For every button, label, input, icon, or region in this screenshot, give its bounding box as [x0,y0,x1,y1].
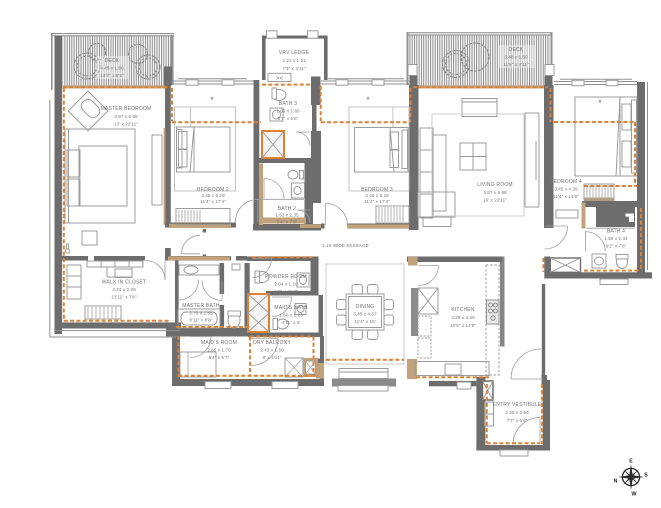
svg-text:DINING: DINING [356,304,375,310]
svg-text:W: W [632,492,637,498]
svg-text:S: S [644,473,648,479]
svg-text:1.50 x 1.23: 1.50 x 1.23 [279,313,303,318]
svg-text:9'4" x 5'7": 9'4" x 5'7" [209,355,230,360]
svg-text:BATH 2: BATH 2 [278,206,296,212]
svg-text:DECK: DECK [509,47,524,53]
svg-text:11'4" x 15': 11'4" x 15' [354,319,375,324]
svg-text:MAID'S BATH: MAID'S BATH [274,305,308,311]
svg-text:11'5" x 4'11": 11'5" x 4'11" [503,62,529,67]
svg-text:*: * [210,95,214,105]
svg-text:N: N [614,479,618,485]
svg-text:16' x 22'11": 16' x 22'11" [483,198,507,203]
svg-text:2.43 x 1.50: 2.43 x 1.50 [260,348,284,353]
svg-text:4.45 x 1.96: 4.45 x 1.96 [100,66,124,71]
svg-text:*: * [366,95,370,105]
svg-text:1.18 WIDE PASSAGE: 1.18 WIDE PASSAGE [322,243,369,248]
svg-text:14'7" x 6'5": 14'7" x 6'5" [100,73,124,78]
svg-text:7'7" x 5'9": 7'7" x 5'9" [507,418,528,423]
svg-text:2.21 x 1.51: 2.21 x 1.51 [282,58,306,63]
svg-text:><: >< [276,75,284,82]
svg-text:11'4" x 14'5": 11'4" x 14'5" [553,194,579,199]
svg-text:VRV LEDGE: VRV LEDGE [279,50,310,56]
svg-text:2.04 x 1.18: 2.04 x 1.18 [274,282,298,287]
svg-text:1.63 x 2.35: 1.63 x 2.35 [275,213,299,218]
svg-text:5'4" x 7'9": 5'4" x 7'9" [277,220,298,225]
svg-text:BATH 4: BATH 4 [607,229,625,235]
svg-text:1.69 x 1.68: 1.69 x 1.68 [276,109,300,114]
svg-text:13'11" x 7'6": 13'11" x 7'6" [111,295,137,300]
svg-text:ENTRY VESTIBULE: ENTRY VESTIBULE [493,402,542,408]
svg-text:13' x 22'11": 13' x 22'11" [114,122,138,127]
svg-text:10'9" x 14'9": 10'9" x 14'9" [450,323,476,328]
svg-text:5'7" x 5'6": 5'7" x 5'6" [278,116,299,121]
svg-text:3.45 x 5.29: 3.45 x 5.29 [201,193,225,198]
svg-text:4'11" x 4': 4'11" x 4' [282,320,301,325]
svg-text:6'2" x 7'8": 6'2" x 7'8" [606,244,627,249]
svg-text:MAID'S ROOM: MAID'S ROOM [201,340,237,346]
svg-text:2.30 x 2.50: 2.30 x 2.50 [505,410,529,415]
svg-text:11'4" x 17'4": 11'4" x 17'4" [200,199,226,204]
svg-text:3.45 x 4.57: 3.45 x 4.57 [353,312,377,317]
svg-text:KITCHEN: KITCHEN [451,307,475,313]
svg-text:8'11" x 8'8": 8'11" x 8'8" [189,318,212,323]
svg-text:2.70 x 2.65: 2.70 x 2.65 [189,311,213,316]
svg-text:DRY BALCONY: DRY BALCONY [253,340,291,346]
svg-text:MASTER BEDROOM: MASTER BEDROOM [101,106,152,112]
svg-text:BATH 3: BATH 3 [279,101,297,107]
svg-text:7'3" x 4'11": 7'3" x 4'11" [282,66,305,71]
svg-text:6'8" x 3'10": 6'8" x 3'10" [274,289,298,294]
svg-text:3.48 x 1.50: 3.48 x 1.50 [504,55,528,60]
svg-text:3.45 x 5.29: 3.45 x 5.29 [365,193,389,198]
svg-text:2.85 x 1.70: 2.85 x 1.70 [207,348,231,353]
svg-text:4.87 x 6.98: 4.87 x 6.98 [483,190,507,195]
svg-text:1.89 x 2.34: 1.89 x 2.34 [604,236,628,241]
svg-text:3.45 x 4.39: 3.45 x 4.39 [554,187,578,192]
svg-text:E: E [629,459,633,465]
svg-text:8' x 4'11": 8' x 4'11" [263,355,282,360]
svg-text:*: * [598,98,602,108]
svg-text:DECK: DECK [105,58,120,64]
svg-text:11'4" x 17'4": 11'4" x 17'4" [364,199,390,204]
svg-text:4.23 x 2.29: 4.23 x 2.29 [112,287,136,292]
svg-text:MASTER BATH: MASTER BATH [182,303,220,309]
svg-text:WALK IN CLOSET: WALK IN CLOSET [102,280,147,286]
svg-text:BEDROOM 4: BEDROOM 4 [550,179,582,185]
svg-text:POWDER ROOM: POWDER ROOM [265,274,307,280]
svg-text:LIVING ROOM: LIVING ROOM [477,182,513,188]
svg-text:3.28 x 4.49: 3.28 x 4.49 [451,315,475,320]
svg-text:3.97 x 6.98: 3.97 x 6.98 [114,114,138,119]
